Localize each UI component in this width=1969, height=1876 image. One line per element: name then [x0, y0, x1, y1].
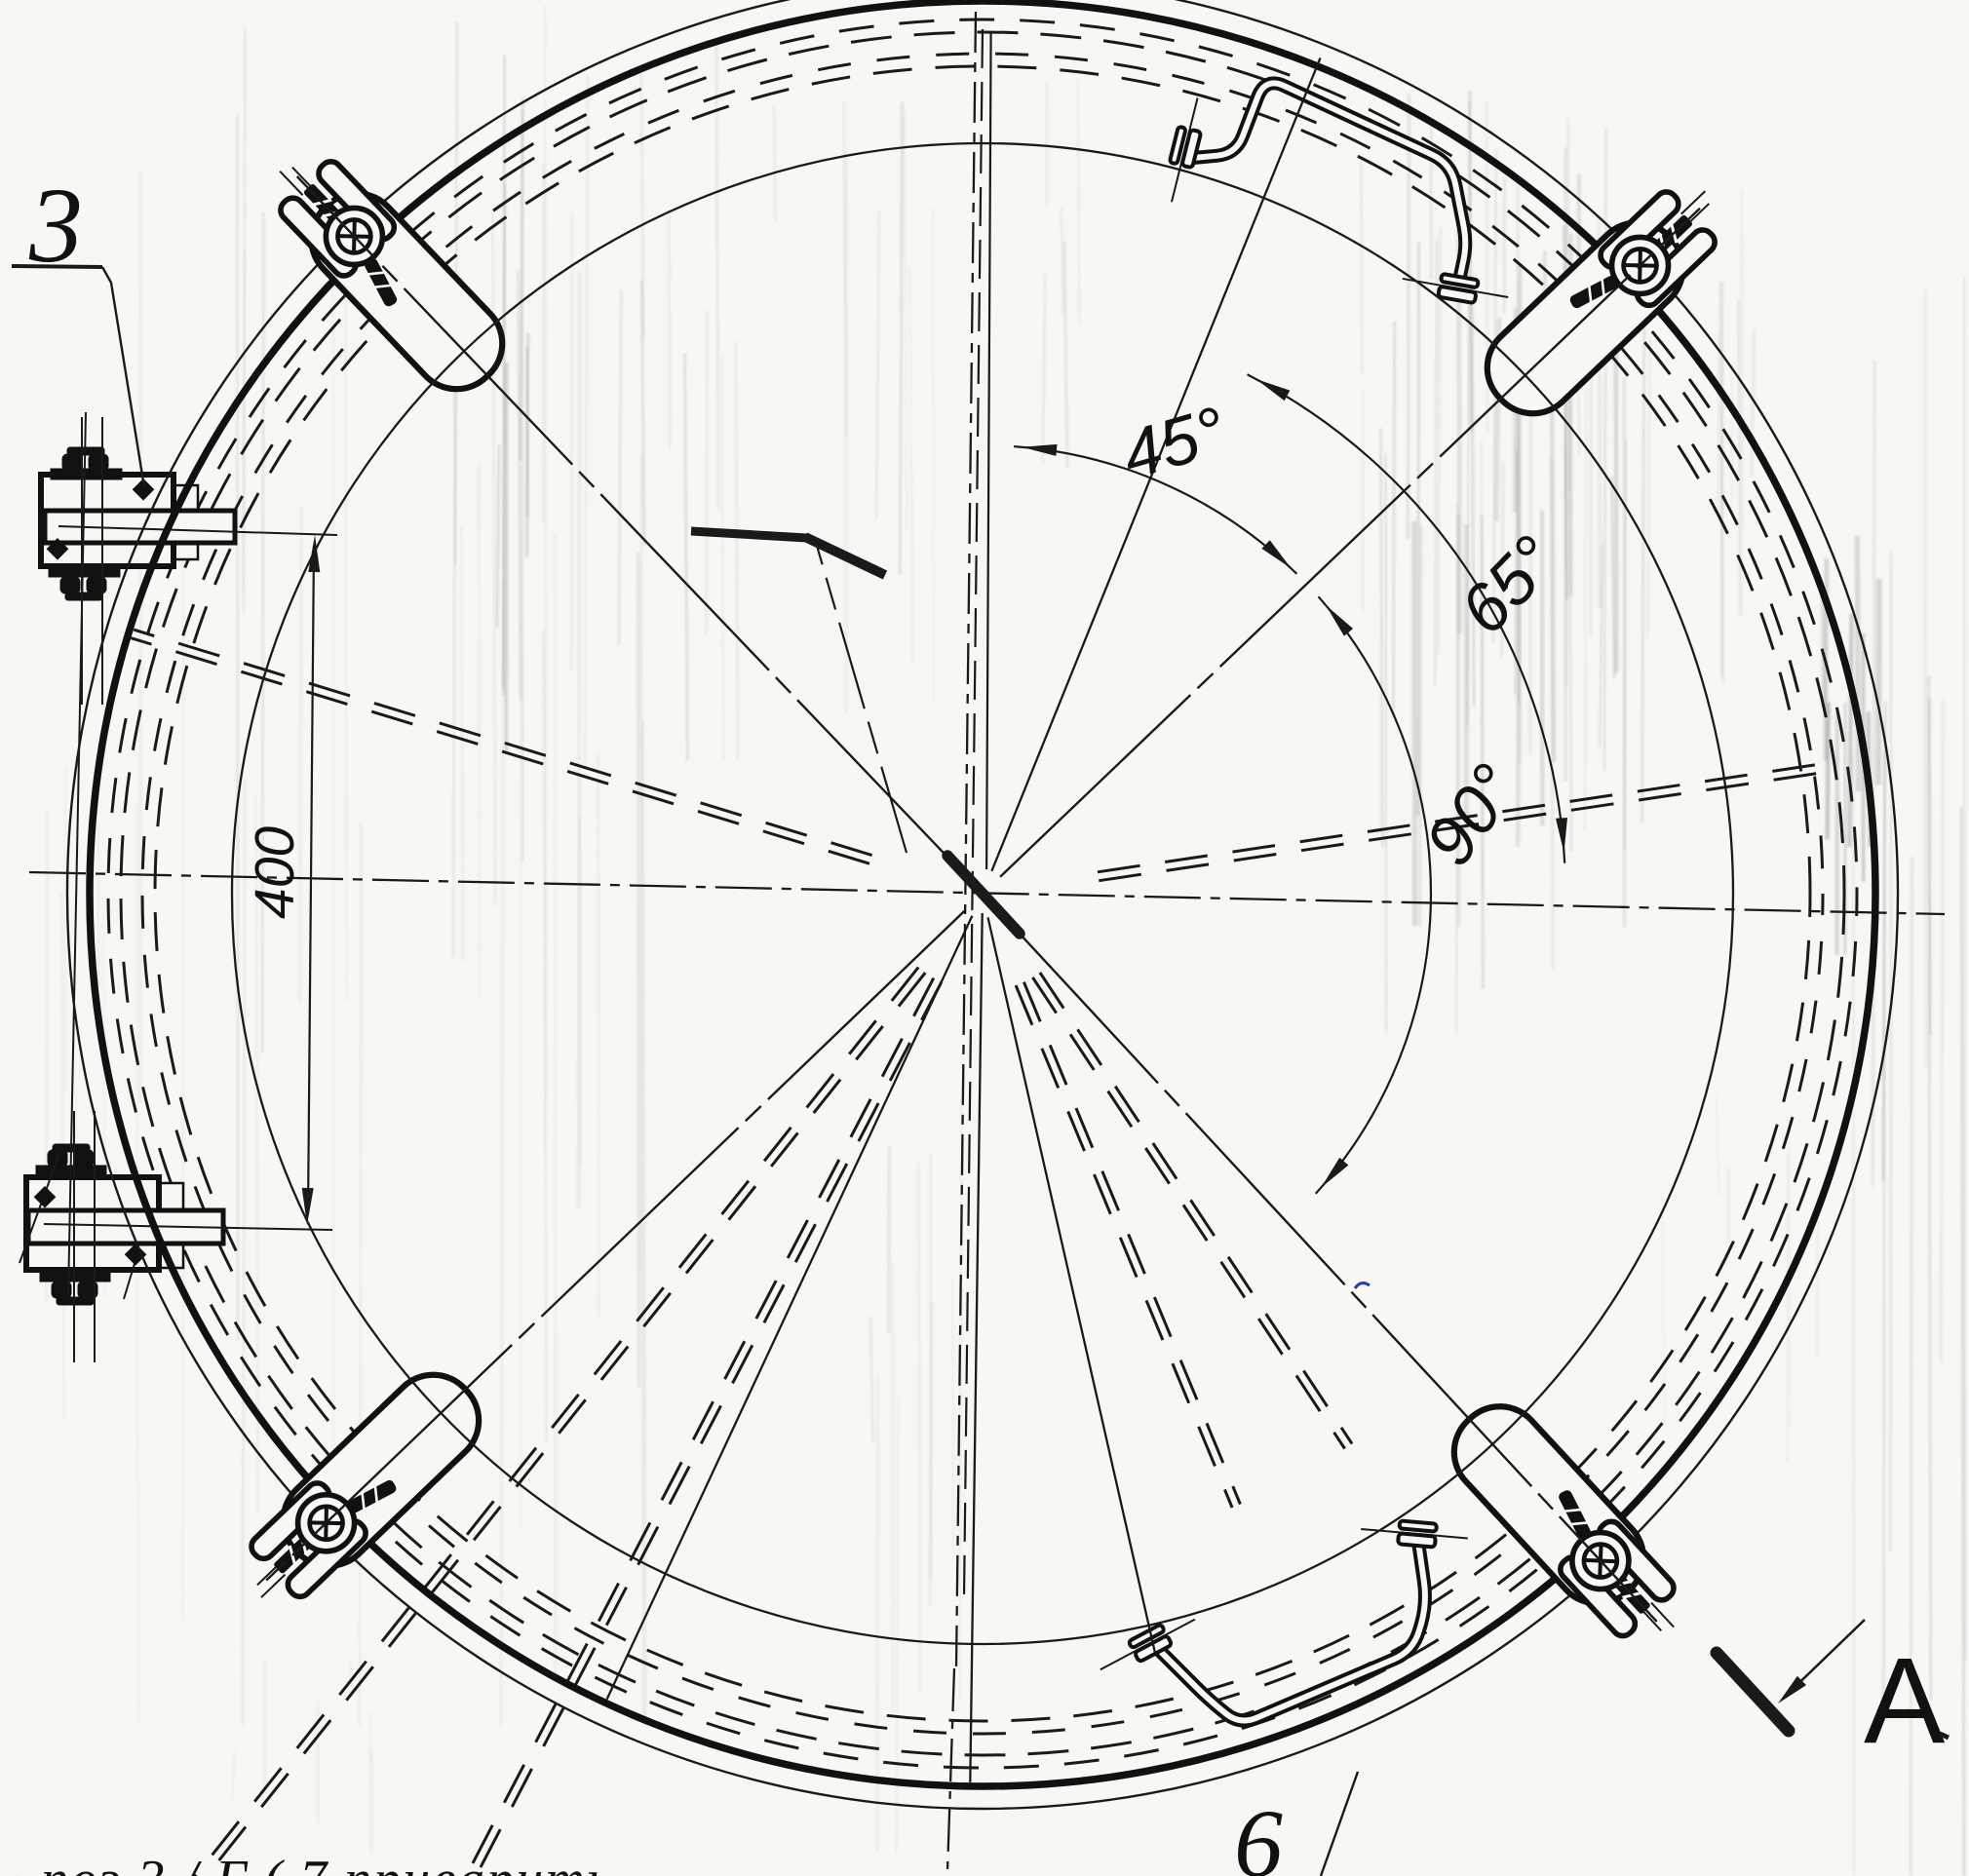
- svg-text:A: A: [1864, 1633, 1946, 1769]
- svg-text:· поз 3 / Г ( 7 приварить: · поз 3 / Г ( 7 приварить: [10, 1850, 613, 1876]
- svg-text:400: 400: [244, 826, 306, 919]
- svg-text:6: 6: [1234, 1789, 1283, 1876]
